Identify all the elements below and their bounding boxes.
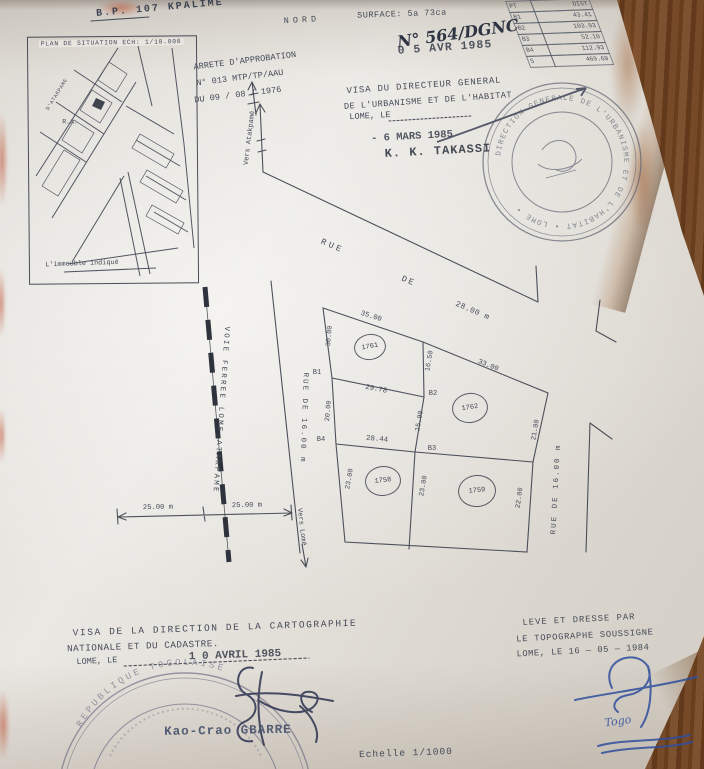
- inset-situation-map: [27, 35, 199, 284]
- parcel-1758-number: 1758: [374, 476, 392, 486]
- dim-25m-left: 25.00 m: [143, 504, 173, 513]
- dim-25m-right: 25.00 m: [232, 502, 262, 511]
- paper-edge-shadow-bottom-right: [599, 651, 704, 769]
- gbarre-name-stamp: Kao-Crao GBARRE: [164, 723, 292, 740]
- coords-val: 469.60: [550, 53, 614, 67]
- coords-table-row: S 469.60: [526, 53, 613, 67]
- parcel-1761-number: 1761: [361, 342, 379, 353]
- point-b1: B1: [313, 369, 321, 377]
- point-b2: B2: [429, 390, 437, 398]
- nord-label: NORD: [284, 15, 321, 27]
- point-b3: B3: [428, 445, 436, 453]
- parcel-1759-number: 1759: [468, 486, 485, 495]
- photographed-document: DIRECTION GENERALE DE L'URBANISME ET DE …: [0, 0, 704, 769]
- parcel-1762-number: 1762: [461, 403, 479, 413]
- dim-28-44: 28.44: [366, 435, 389, 445]
- inset-ra-label: R.A.: [62, 118, 78, 125]
- point-b4: B4: [317, 436, 325, 444]
